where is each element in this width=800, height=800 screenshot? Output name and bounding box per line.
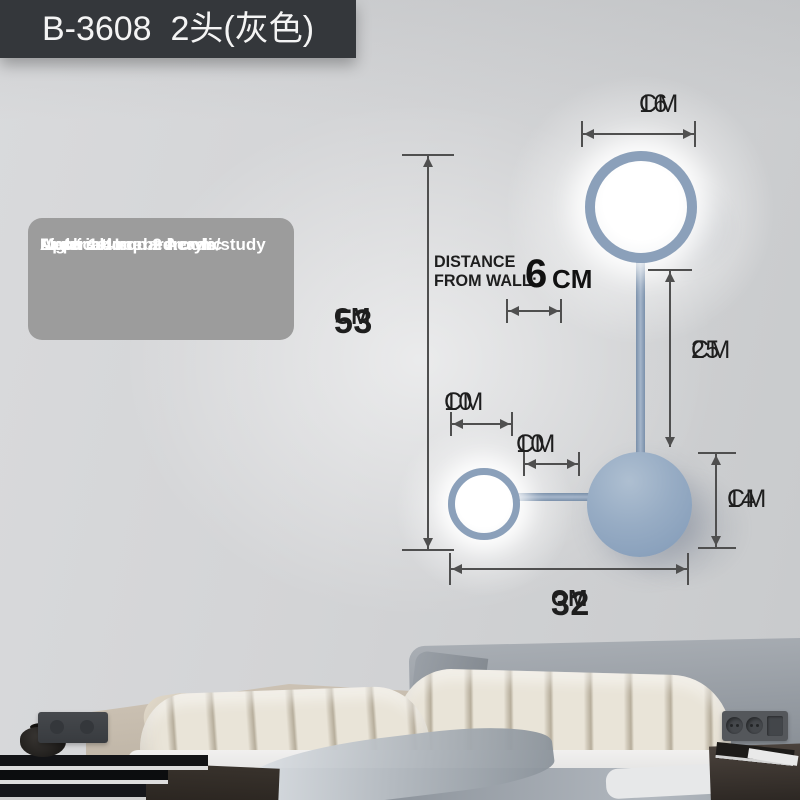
lamp-base-disc [587, 452, 692, 557]
socket-hole-icon [756, 724, 759, 727]
dim-top-width-unit: CM [639, 90, 679, 119]
spec-light-source: Light source: 2 heads [40, 231, 216, 258]
arrow-up-icon [711, 455, 721, 465]
bedroom-photo [0, 628, 800, 800]
dim-wall-distance-tick-left [506, 299, 508, 323]
outlet-switch-icon [767, 716, 783, 736]
dim-wall-distance-line2: FROM WALL: [434, 271, 537, 290]
lamp-rod-vertical [636, 260, 645, 456]
arrow-up-icon [665, 272, 675, 282]
book [0, 755, 208, 770]
dim-total-width-unit: CM [551, 585, 588, 612]
arrow-left-icon [526, 459, 536, 469]
arrow-left-icon [453, 419, 463, 429]
dim-top-width-tick-right [694, 121, 696, 147]
socket-hole-icon [750, 724, 753, 727]
dim-total-height-unit: CM [334, 303, 371, 330]
dim-wall-distance-value: 6 [525, 252, 547, 297]
lamp-head-small [448, 468, 520, 540]
lamp-rod-horizontal [517, 493, 591, 501]
dim-total-width-tick-right [687, 553, 689, 585]
dim-wall-distance-tick-right [560, 299, 562, 323]
dim-arm-length-tick-right [578, 452, 580, 476]
outlet-socket-icon [726, 717, 743, 734]
arrow-down-icon [423, 538, 433, 548]
dim-arm-length-unit: CM [516, 430, 556, 459]
switch-button-icon [50, 720, 64, 734]
dim-disc-tick-bottom [698, 547, 736, 549]
arrow-right-icon [549, 306, 559, 316]
arrow-up-icon [423, 157, 433, 167]
dim-arm-length-tick-left [523, 452, 525, 476]
arrow-left-icon [509, 306, 519, 316]
arrow-right-icon [683, 129, 693, 139]
outlet-socket-icon [746, 717, 763, 734]
socket-hole-icon [736, 724, 739, 727]
dim-disc-tick-top [698, 452, 736, 454]
dim-total-width-tick-left [449, 553, 451, 585]
dim-head-offset-tick-left [450, 412, 452, 436]
dim-total-height-line [427, 156, 429, 549]
dim-head-offset-tick-right [511, 412, 513, 436]
model-badge: B-3608 2头(灰色) [0, 0, 356, 58]
arrow-right-icon [676, 564, 686, 574]
product-scene: 16CM 53CM DISTANCE FROM WALL: 6 CM 25CM … [0, 0, 800, 800]
arrow-down-icon [711, 536, 721, 546]
dim-wall-distance-line1: DISTANCE [434, 252, 515, 271]
dim-wall-distance-unit: CM [552, 264, 592, 295]
power-outlet-panel [722, 711, 788, 741]
dim-top-width-line [582, 133, 695, 135]
arrow-right-icon [567, 459, 577, 469]
book [0, 770, 168, 784]
dim-drop-rod-unit: CM [691, 336, 731, 365]
arrow-left-icon [584, 129, 594, 139]
wall-switch-panel [38, 712, 108, 743]
arrow-left-icon [452, 564, 462, 574]
arrow-right-icon [500, 419, 510, 429]
dim-drop-rod-line [669, 271, 671, 447]
dim-disc-line [715, 454, 717, 548]
dim-total-height-tick-bottom [402, 549, 454, 551]
dim-disc-unit: CM [727, 485, 767, 514]
dim-top-width-tick-left [581, 121, 583, 147]
lamp-head-large [585, 151, 697, 263]
arrow-down-icon [665, 437, 675, 447]
book [0, 784, 146, 800]
specs-box: Material: Iron + Acrylic Area: 1-4 squar… [28, 218, 294, 340]
socket-hole-icon [730, 724, 733, 727]
dim-total-height-tick-top [402, 154, 454, 156]
dim-total-width-line [450, 568, 688, 570]
switch-button-icon [80, 720, 94, 734]
